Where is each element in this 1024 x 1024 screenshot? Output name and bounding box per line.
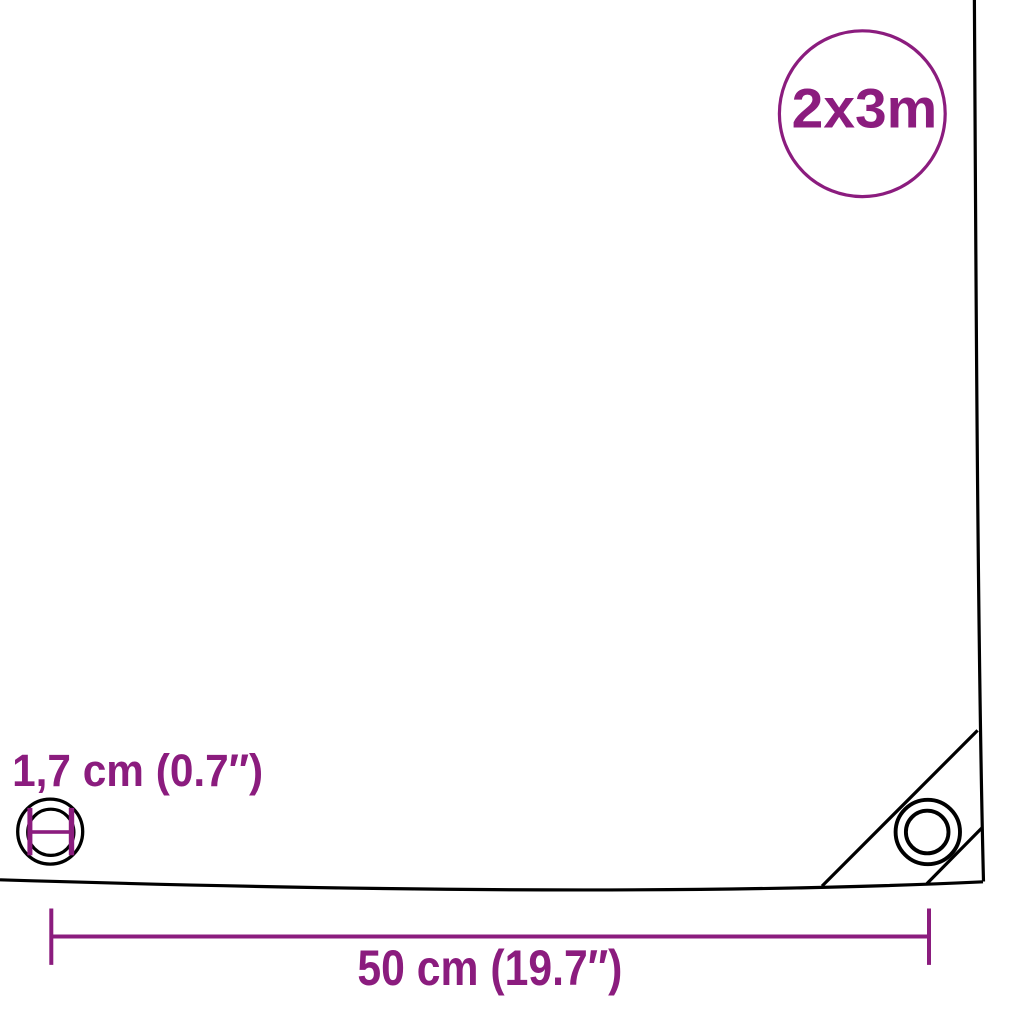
svg-text:2x3m: 2x3m	[792, 77, 938, 139]
svg-text:50 cm (19.7″): 50 cm (19.7″)	[357, 940, 622, 996]
svg-text:1,7 cm (0.7″): 1,7 cm (0.7″)	[12, 745, 263, 796]
